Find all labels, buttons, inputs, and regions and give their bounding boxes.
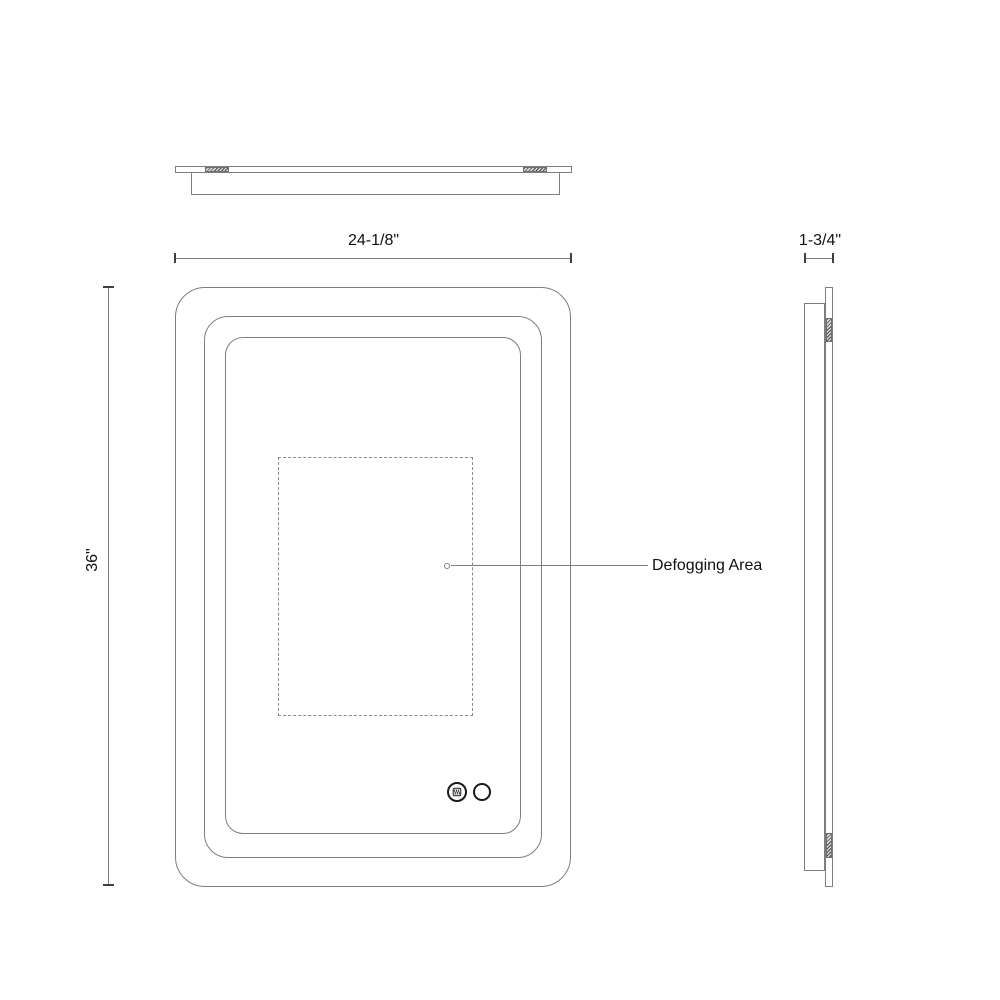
side-view-housing: [804, 303, 825, 871]
technical-drawing: 24-1/8" 1-3/4" 36" Defogging Area: [0, 0, 1000, 1000]
dimension-tick: [832, 253, 834, 263]
mounting-bracket-hatch: [826, 833, 832, 858]
power-button-icon: [473, 783, 491, 801]
depth-dimension-line: [805, 258, 833, 259]
width-dimension-line: [175, 258, 572, 259]
dimension-tick: [103, 286, 114, 288]
depth-dimension-label: 1-3/4": [770, 232, 870, 250]
height-dimension-line: [108, 287, 109, 886]
defogger-icon: [447, 782, 467, 802]
leader-line: [451, 565, 648, 566]
mounting-bracket-hatch: [826, 318, 832, 342]
height-dimension-label: 36": [84, 530, 102, 590]
top-view-housing: [191, 172, 560, 195]
mounting-bracket-hatch: [523, 167, 547, 172]
dimension-tick: [174, 253, 176, 263]
defogging-area-label: Defogging Area: [652, 557, 762, 575]
mounting-bracket-hatch: [205, 167, 229, 172]
width-dimension-label: 24-1/8": [175, 232, 572, 250]
dimension-tick: [804, 253, 806, 263]
side-view-glass-bar: [825, 287, 833, 887]
top-view-glass-bar: [175, 166, 572, 173]
leader-dot: [444, 563, 450, 569]
dimension-tick: [103, 884, 114, 886]
dimension-tick: [570, 253, 572, 263]
defogging-area-outline: [278, 457, 473, 716]
